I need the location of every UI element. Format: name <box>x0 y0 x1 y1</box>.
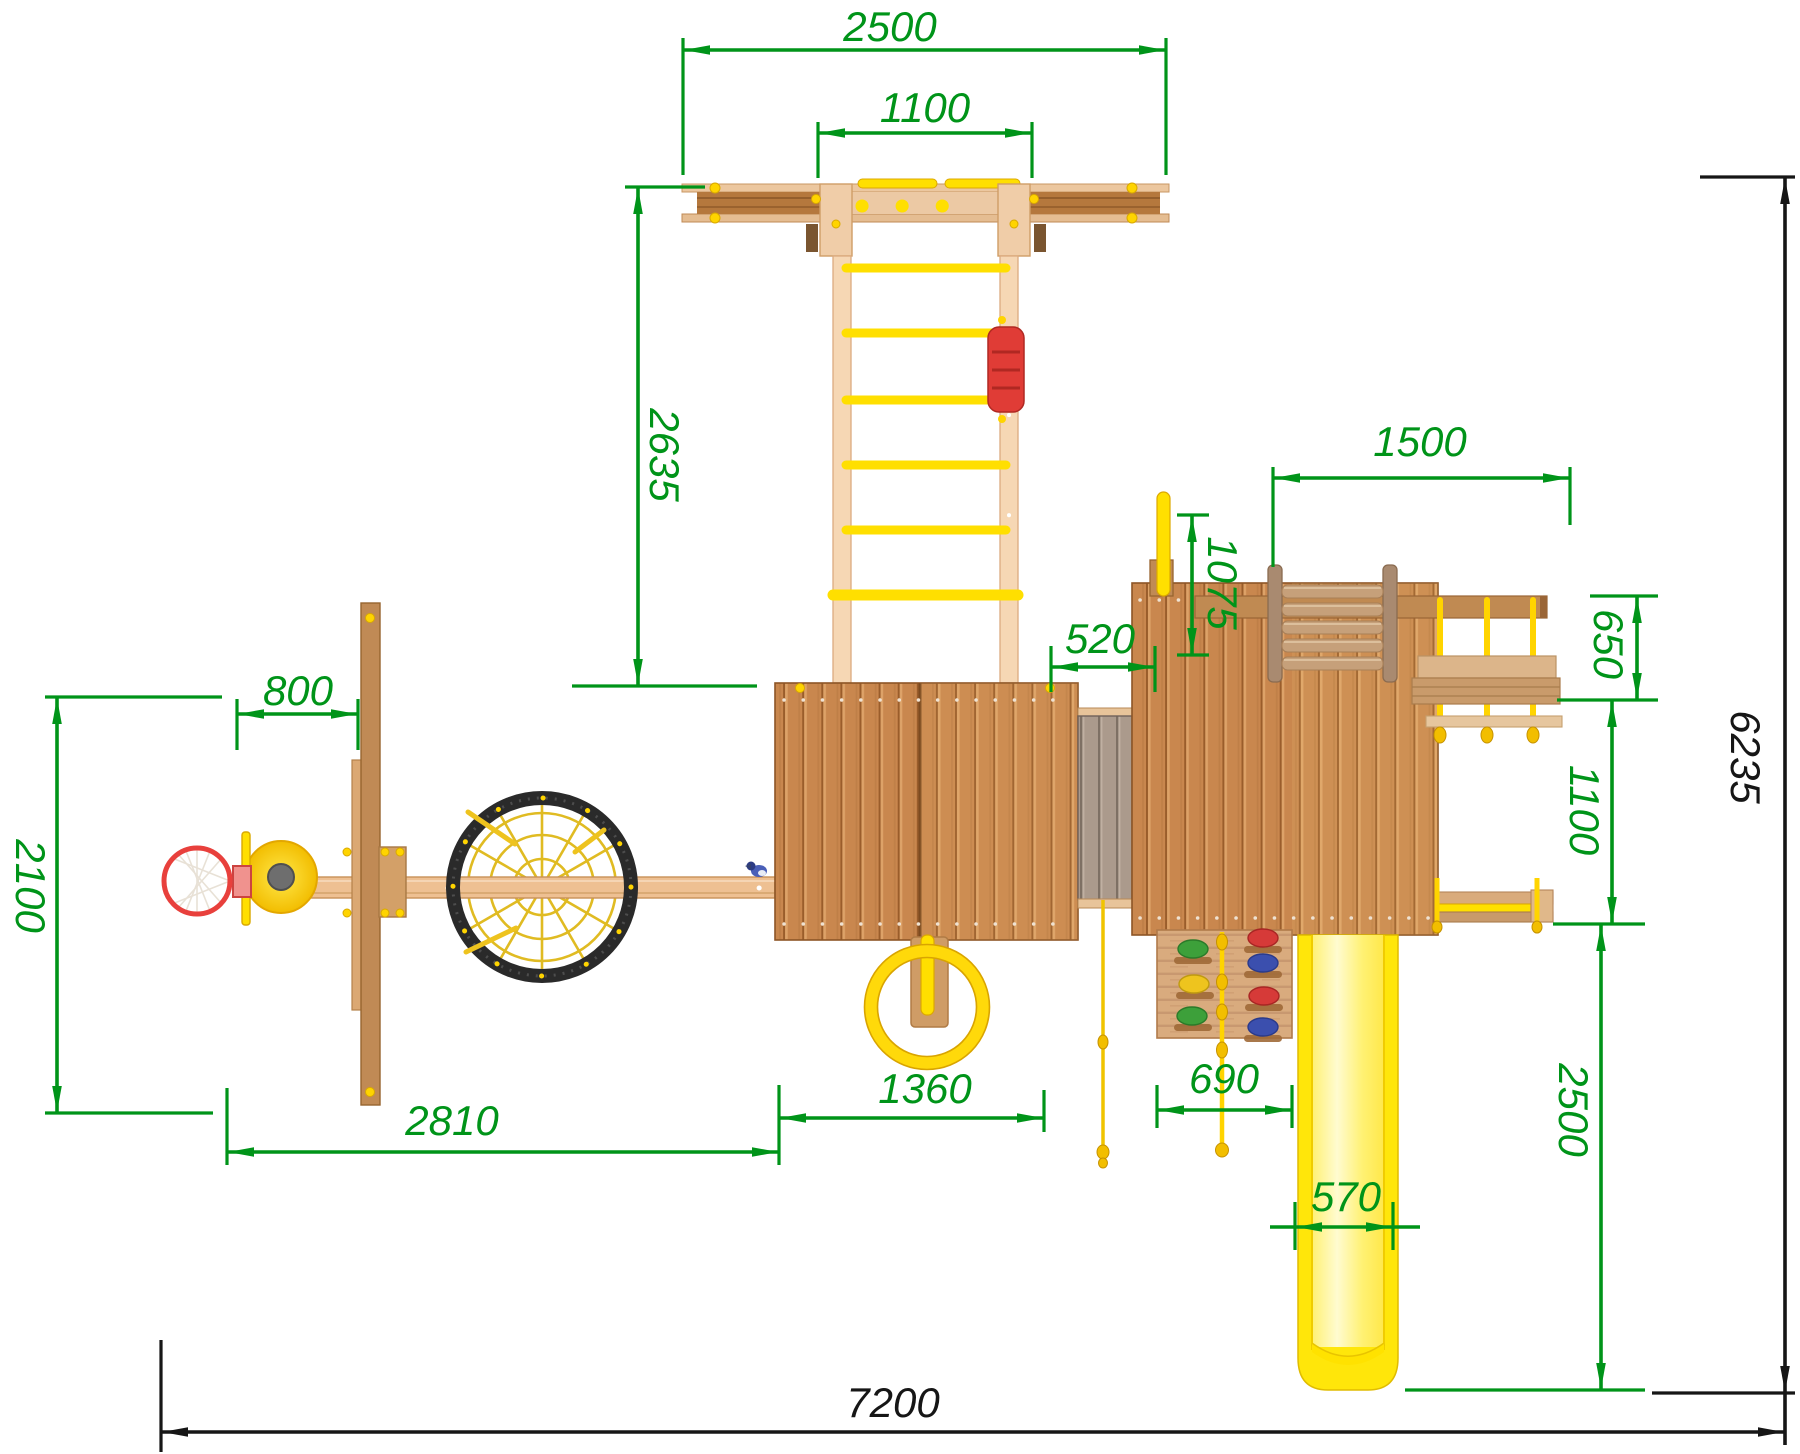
swing-seat <box>1412 678 1560 704</box>
hanging-rope-left <box>1097 900 1109 1168</box>
dim-label-slide-width: 570 <box>1311 1173 1382 1220</box>
bridge <box>1078 708 1132 908</box>
yellow-pole <box>1157 492 1170 596</box>
dim-left-zone: 2810 <box>227 1085 779 1165</box>
dim-label-slide-run: 2500 <box>1550 1062 1597 1157</box>
dim-total-width: 7200 <box>161 1340 1785 1452</box>
beam-board <box>245 877 775 898</box>
dim-label-bridge-offset: 520 <box>1065 615 1136 662</box>
rope-knots <box>1434 727 1539 743</box>
dim-label-pole-height: 1075 <box>1199 536 1246 630</box>
ladder-rungs <box>833 268 1018 595</box>
slide-surface <box>1312 935 1384 1347</box>
small-bird <box>745 862 767 878</box>
gym-ring-assembly <box>865 935 990 1070</box>
disc-hub <box>268 864 294 890</box>
dim-hoop-zone: 2100 <box>7 697 222 1113</box>
dim-ladder-length: 2635 <box>572 187 757 686</box>
beam-clamp-block <box>379 847 406 917</box>
dim-wall-width: 690 <box>1157 1055 1292 1128</box>
dim-slide-run: 2500 <box>1405 924 1645 1390</box>
dim-monkeybar-width: 1100 <box>818 84 1032 178</box>
dim-label-left-zone: 2810 <box>404 1097 499 1144</box>
dim-label-monkeybar-width: 1100 <box>880 84 971 131</box>
rail-end-block <box>1531 890 1553 922</box>
dim-label-ladder-length: 2635 <box>641 407 688 502</box>
dim-swing-clear: 1100 <box>1553 700 1658 924</box>
dim-label-total-width: 7200 <box>846 1379 940 1426</box>
dim-swing-depth: 650 <box>1585 596 1658 700</box>
dim-label-ring-zone: 1360 <box>878 1065 972 1112</box>
dim-swing-frame: 1500 <box>1273 418 1570 567</box>
dim-label-top-span: 2500 <box>842 3 937 50</box>
hoop-bracket <box>233 866 251 897</box>
left-post-boards <box>343 603 406 1105</box>
dim-label-hoop-offset: 800 <box>263 667 334 714</box>
dim-label-hoop-zone: 2100 <box>7 838 54 933</box>
dim-label-swing-depth: 650 <box>1585 609 1632 680</box>
playground-plan-svg: 2500 1100 2635 1075 <box>0 0 1800 1454</box>
dim-total-depth: 6235 <box>1652 177 1795 1445</box>
post-brace <box>1034 224 1046 252</box>
dim-label-swing-clear: 1100 <box>1561 765 1608 856</box>
post-brace <box>806 224 818 252</box>
bridge-planks <box>1078 716 1132 900</box>
net-side-rail <box>1268 565 1282 682</box>
dim-ring-zone: 1360 <box>779 1065 1044 1132</box>
net-side-rail <box>1383 565 1397 682</box>
bottom-rail <box>682 214 1169 222</box>
swing-seat-top <box>1418 656 1556 678</box>
slide <box>1298 935 1398 1390</box>
monkey-bar-beam <box>682 179 1169 256</box>
basketball-stand <box>164 832 317 925</box>
seat-under-rail <box>1426 716 1562 727</box>
tall-board <box>361 603 380 1105</box>
dim-label-swing-frame: 1500 <box>1373 418 1467 465</box>
climbing-wall <box>1157 929 1292 1157</box>
central-tower <box>775 683 1078 940</box>
dim-label-total-depth: 6235 <box>1722 710 1769 804</box>
lower-handrail <box>1432 878 1553 933</box>
net-slats <box>1282 585 1383 670</box>
technical-drawing-canvas: 2500 1100 2635 1075 <box>0 0 1800 1454</box>
grab-handle <box>858 179 937 188</box>
rope-ladder <box>833 256 1024 683</box>
dim-hoop-offset: 800 <box>237 667 358 750</box>
fireman-pole <box>1150 492 1173 596</box>
dim-label-wall-width: 690 <box>1189 1055 1260 1102</box>
